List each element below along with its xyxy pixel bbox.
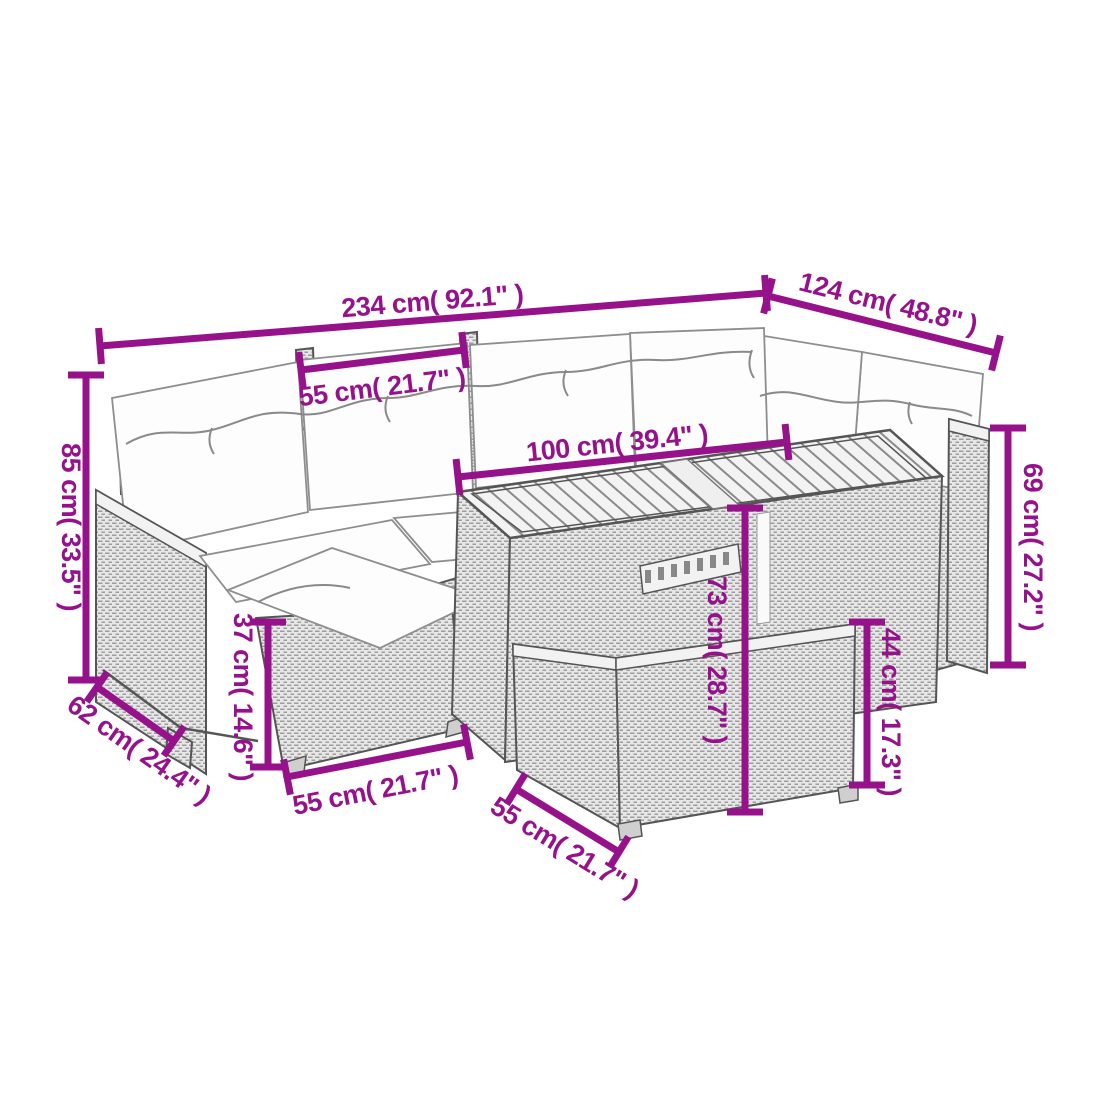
table-frame-post [757,512,770,624]
sofa-set-line-art: 234 cm( 92.1" ) 124 cm( 48.8" ) 55 cm( 2… [0,0,1100,1100]
dim-table-height-label: 73 cm( 28.7" ) [702,576,732,744]
right-armrest [947,419,989,673]
dim-armrest-height-label: 69 cm( 27.2" ) [1018,463,1048,631]
right-armrest-panel [947,419,989,673]
table-left-face [452,492,510,760]
dim-bench-height-label: 44 cm( 17.3" ) [876,628,906,796]
dimension-diagram: 234 cm( 92.1" ) 124 cm( 48.8" ) 55 cm( 2… [0,0,1100,1100]
dim-footstool-height-label: 37 cm( 14.6" ) [228,613,258,781]
dim-armrest-height: 69 cm( 27.2" ) [990,428,1048,665]
bench [513,624,858,840]
bench-leg [618,820,642,840]
dim-backrest-height-label: 85 cm( 33.5" ) [56,443,86,611]
